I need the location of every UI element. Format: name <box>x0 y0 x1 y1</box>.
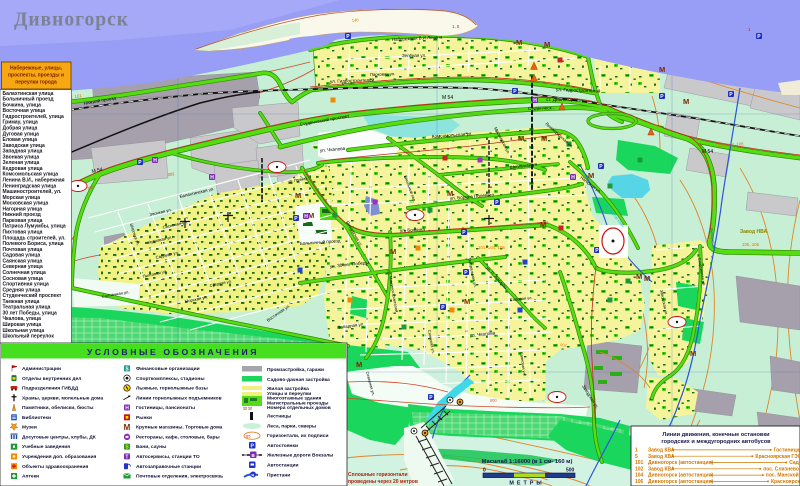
svg-text:Сад: Сад <box>789 460 799 466</box>
svg-text:Памятники, обелиски, бюсты: Памятники, обелиски, бюсты <box>22 404 93 411</box>
svg-text:Н: Н <box>571 175 575 181</box>
svg-text:Гостиницы, пансионаты: Гостиницы, пансионаты <box>136 405 195 411</box>
svg-text:М: М <box>124 423 131 432</box>
svg-text:М: М <box>464 297 470 306</box>
svg-text:М: М <box>295 191 301 200</box>
svg-text:Н: Н <box>304 214 308 220</box>
svg-text:Н: Н <box>125 406 129 412</box>
svg-text:0: 0 <box>483 468 486 474</box>
svg-text:Рынки: Рынки <box>136 415 152 421</box>
svg-text:Р: Р <box>251 443 255 449</box>
svg-text:Завод КВА: Завод КВА <box>648 454 675 460</box>
svg-text:Дивногорск: Дивногорск <box>14 10 129 31</box>
svg-text:000: 000 <box>490 397 498 403</box>
svg-text:101: 101 <box>635 460 644 466</box>
svg-text:М: М <box>544 40 550 49</box>
svg-text:5: 5 <box>635 454 638 460</box>
svg-text:Объекты здравоохранения: Объекты здравоохранения <box>22 463 89 470</box>
svg-text:Досуговые центры, клубы, ДК: Досуговые центры, клубы, ДК <box>22 434 96 441</box>
svg-text:М: М <box>683 97 689 106</box>
svg-text:Н: Н <box>210 175 214 181</box>
svg-text:105, 106: 105, 106 <box>742 242 760 247</box>
svg-text:Гостиница: Гостиница <box>774 448 800 454</box>
svg-text:1, 5: 1, 5 <box>452 24 460 29</box>
svg-text:Дивногорск (автостанция): Дивногорск (автостанция) <box>648 460 714 466</box>
svg-text:М: М <box>518 134 524 143</box>
svg-text:Лестницы: Лестницы <box>267 414 291 420</box>
svg-text:Студенческ...: Студенческ... <box>528 105 555 111</box>
svg-text:12 12: 12 12 <box>243 407 252 411</box>
svg-text:Аптеки: Аптеки <box>22 474 39 480</box>
svg-text:1: 1 <box>748 27 751 32</box>
svg-text:Завод КВА: Завод КВА <box>648 448 675 454</box>
svg-text:М: М <box>636 272 642 281</box>
svg-text:106: 106 <box>635 479 644 485</box>
svg-text:Сплошные горизонтали: Сплошные горизонтали <box>348 472 408 478</box>
svg-text:Финансовые организации: Финансовые организации <box>136 366 200 372</box>
svg-text:М: М <box>690 349 696 358</box>
svg-text:М: М <box>659 65 665 74</box>
svg-text:Рестораны, кафе, столовые, бар: Рестораны, кафе, столовые, бары <box>136 434 220 441</box>
svg-text:Горизонтали, их подписи: Горизонтали, их подписи <box>267 433 328 439</box>
svg-text:Железные дороги Вокзалы: Железные дороги Вокзалы <box>266 453 333 459</box>
svg-text:Дивногорск (автостанция): Дивногорск (автостанция) <box>648 473 714 479</box>
svg-text:Т: Т <box>125 454 128 460</box>
svg-text:М: М <box>588 171 594 180</box>
svg-text:Бани, сауны: Бани, сауны <box>136 444 166 450</box>
svg-text:МЕТРЫ: МЕТРЫ <box>509 481 544 486</box>
svg-text:Красноярск: Красноярск <box>771 479 800 485</box>
svg-text:500: 500 <box>566 468 575 474</box>
svg-text:Подразделения ГИБДД: Подразделения ГИБДД <box>22 386 79 392</box>
svg-text:Промзастройка, гаражи: Промзастройка, гаражи <box>267 366 324 373</box>
svg-text:Линии горнолыжных подъемников: Линии горнолыжных подъемников <box>136 395 222 401</box>
svg-text:Я: Я <box>251 472 254 477</box>
svg-text:М 54: М 54 <box>702 149 713 155</box>
svg-text:Автостанции: Автостанции <box>267 463 299 469</box>
svg-text:Парковая ул.: Парковая ул. <box>370 71 396 77</box>
svg-text:М: М <box>390 247 396 256</box>
svg-text:Красноярская ГЭС: Красноярская ГЭС <box>755 454 800 460</box>
svg-text:Садово-дачная застройка: Садово-дачная застройка <box>267 376 330 383</box>
svg-text:Н: Н <box>533 98 537 104</box>
svg-text:Учреждения доп. образования: Учреждения доп. образования <box>22 453 96 460</box>
svg-text:Н: Н <box>153 158 157 164</box>
svg-text:М: М <box>541 134 547 143</box>
svg-text:М: М <box>356 360 362 369</box>
svg-text:М 54: М 54 <box>442 95 453 101</box>
svg-text:Масштаб 1:16000 (в 1 см- 160: Масштаб 1:16000 (в 1 см- 160 м) <box>482 458 573 465</box>
svg-text:М: М <box>644 274 650 283</box>
svg-text:Пристани: Пристани <box>267 472 290 478</box>
svg-text:101, 104, 106: 101, 104, 106 <box>478 245 505 250</box>
svg-text:Спорткомплексы, стадионы: Спорткомплексы, стадионы <box>136 376 205 382</box>
svg-text:М: М <box>516 38 522 47</box>
svg-text:1: 1 <box>635 448 638 454</box>
svg-text:Завод НВА: Завод НВА <box>740 229 767 235</box>
svg-text:Храмы, церкви, молельные дома: Храмы, церкви, молельные дома <box>22 395 103 401</box>
svg-text:пос. Слизнево: пос. Слизнево <box>763 466 799 472</box>
svg-text:Зелёная ул.: Зелёная ул. <box>402 53 426 58</box>
svg-text:Дивногорск (автостанция): Дивногорск (автостанция) <box>648 479 714 485</box>
svg-text:Администрации: Администрации <box>22 366 61 372</box>
svg-text:УСЛОВНЫЕ ОБОЗНАЧЕНИЯ: УСЛОВНЫЕ ОБОЗНАЧЕНИЯ <box>87 347 259 357</box>
svg-text:Автосервисы, станции ТО: Автосервисы, станции ТО <box>136 454 200 460</box>
svg-text:102: 102 <box>635 466 644 472</box>
svg-text:Линии движения, конечные остан: Линии движения, конечные остановки <box>662 432 770 438</box>
svg-text:проведены через 20 метров: проведены через 20 метров <box>348 479 418 485</box>
svg-text:85: 85 <box>246 434 251 439</box>
svg-text:Музеи: Музеи <box>22 425 37 431</box>
svg-text:городских и междугородних авто: городских и междугородних автобусов <box>661 438 771 445</box>
svg-text:Автостоянки: Автостоянки <box>267 443 298 449</box>
svg-text:М: М <box>540 220 546 229</box>
svg-text:Леса, парки, скверы: Леса, парки, скверы <box>267 423 316 429</box>
svg-text:Крупные магазины. Торговые дом: Крупные магазины. Торговые дома <box>136 425 223 431</box>
svg-text:Отделы внутренних дел: Отделы внутренних дел <box>22 376 81 382</box>
svg-text:Набережные, улицы,: Набережные, улицы, <box>10 65 63 72</box>
svg-text:пос. Манской: пос. Манской <box>766 472 799 479</box>
svg-text:Завод КВА: Завод КВА <box>648 466 675 472</box>
svg-text:104: 104 <box>635 473 644 479</box>
svg-text:Номера отдельных домов: Номера отдельных домов <box>267 405 331 411</box>
svg-text:Школьный переулок: Школьный переулок <box>3 333 55 340</box>
svg-text:проспекты, проезды и: проспекты, проезды и <box>8 73 64 79</box>
svg-text:Учебные заведения: Учебные заведения <box>22 443 70 450</box>
svg-text:ст. Дивногорск: ст. Дивногорск <box>546 97 579 103</box>
svg-text:переулки города: переулки города <box>15 80 57 86</box>
svg-text:Почтовые отделения, электросвя: Почтовые отделения, электросвязь <box>136 474 223 480</box>
svg-text:Библиотеки: Библиотеки <box>22 414 51 421</box>
svg-text:Лыжные, горнолыжные базы: Лыжные, горнолыжные базы <box>136 385 208 392</box>
svg-text:Автозаправочные станции: Автозаправочные станции <box>136 464 201 470</box>
